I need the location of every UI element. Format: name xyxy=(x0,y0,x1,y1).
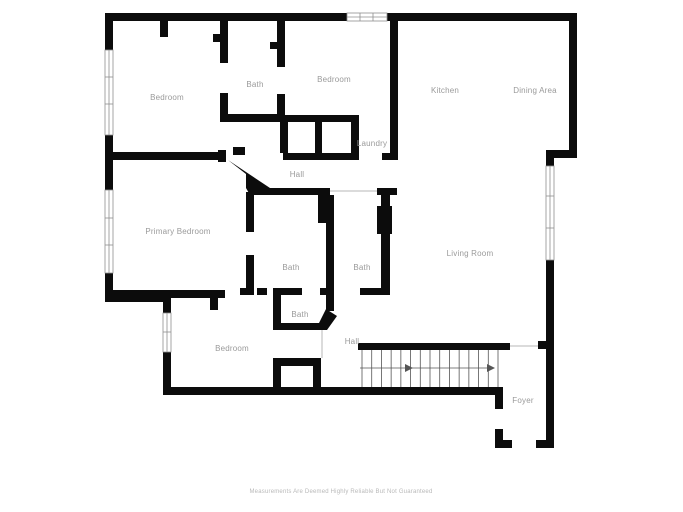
wall xyxy=(273,288,302,295)
cased-openings xyxy=(322,191,538,358)
wall xyxy=(569,13,577,158)
wall xyxy=(105,152,226,160)
room-label-bath-top: Bath xyxy=(246,80,263,89)
wall xyxy=(318,195,334,223)
wall xyxy=(358,343,510,350)
wall xyxy=(546,150,577,158)
wall xyxy=(381,234,390,295)
wall xyxy=(218,150,226,162)
room-label-hall-lower: Hall xyxy=(345,337,360,346)
room-label-bedroom-top-left: Bedroom xyxy=(150,93,184,102)
wall xyxy=(546,260,554,447)
wall xyxy=(326,223,334,311)
wall xyxy=(280,121,288,153)
wall xyxy=(495,440,512,448)
wall xyxy=(387,13,577,21)
wall xyxy=(283,153,355,160)
window-left-upper xyxy=(105,50,113,135)
wall xyxy=(546,158,554,166)
wall xyxy=(313,358,321,387)
room-label-bedroom-lower: Bedroom xyxy=(215,344,249,353)
window-bedroom-lower xyxy=(163,313,171,352)
wall xyxy=(390,13,398,160)
wall xyxy=(382,153,398,160)
wall xyxy=(220,13,228,63)
window-top xyxy=(347,13,387,21)
room-label-laundry: Laundry xyxy=(357,139,387,148)
wall xyxy=(210,290,218,310)
wall xyxy=(381,188,390,208)
wall xyxy=(105,135,113,190)
room-label-dining-area: Dining Area xyxy=(513,86,557,95)
room-label-living-room: Living Room xyxy=(447,249,494,258)
room-label-primary-bedroom: Primary Bedroom xyxy=(145,227,210,236)
room-label-kitchen: Kitchen xyxy=(431,86,459,95)
wall xyxy=(105,290,225,298)
wall-angled xyxy=(228,160,270,195)
wall xyxy=(160,13,168,37)
room-label-bath-middle-right: Bath xyxy=(353,263,370,272)
room-label-bath-lower: Bath xyxy=(291,310,308,319)
wall xyxy=(495,387,503,409)
wall xyxy=(213,34,220,42)
wall xyxy=(163,387,503,395)
wall xyxy=(220,114,284,122)
window-left-lower xyxy=(105,190,113,273)
room-label-foyer: Foyer xyxy=(512,396,534,405)
room-label-bedroom-top-middle: Bedroom xyxy=(317,75,351,84)
wall xyxy=(320,288,327,295)
room-label-hall-upper: Hall xyxy=(290,170,305,179)
stair-arrow-icon xyxy=(487,364,495,372)
window-right xyxy=(546,166,554,260)
floorplan-page: Bedroom Bath Bedroom Kitchen Dining Area… xyxy=(0,0,683,512)
wall xyxy=(105,13,113,50)
wall xyxy=(360,288,390,295)
wall xyxy=(536,440,554,448)
wall xyxy=(246,192,254,232)
wall xyxy=(377,206,392,234)
wall xyxy=(257,288,267,295)
wall xyxy=(315,115,322,157)
stair-treads xyxy=(362,350,498,387)
staircase xyxy=(360,350,498,387)
wall xyxy=(538,341,546,349)
stair-arrow-icon xyxy=(405,364,413,372)
wall xyxy=(233,147,245,155)
wall xyxy=(270,42,277,49)
floorplan-drawing: Bedroom Bath Bedroom Kitchen Dining Area… xyxy=(0,0,683,512)
room-label-bath-middle-left: Bath xyxy=(282,263,299,272)
disclaimer-text: Measurements Are Deemed Highly Reliable … xyxy=(249,489,432,495)
wall xyxy=(240,288,250,295)
wall xyxy=(268,188,330,195)
wall xyxy=(277,13,285,67)
